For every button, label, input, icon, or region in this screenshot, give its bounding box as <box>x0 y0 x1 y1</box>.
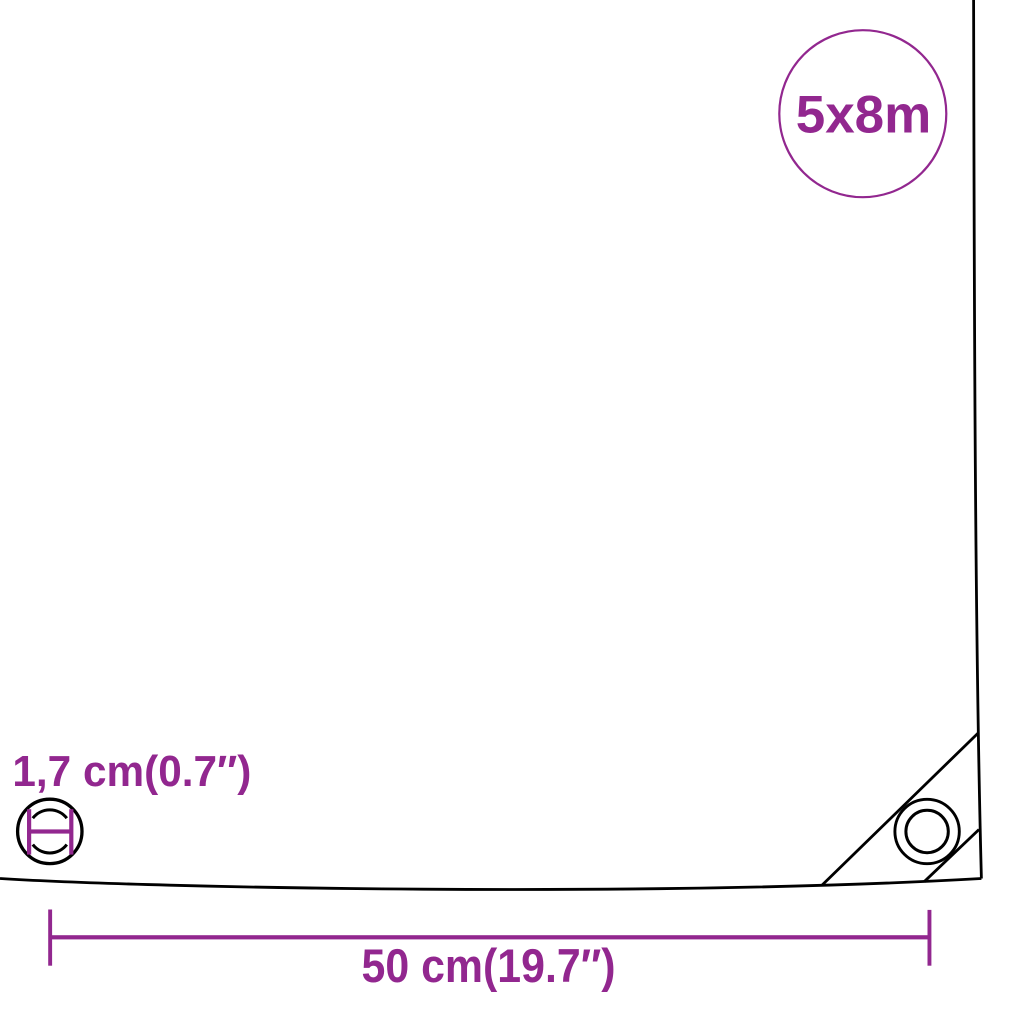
svg-text:5x8m: 5x8m <box>796 85 932 144</box>
svg-text:1,7 cm(0.7″): 1,7 cm(0.7″) <box>12 748 251 796</box>
svg-text:50 cm(19.7″): 50 cm(19.7″) <box>362 939 616 992</box>
